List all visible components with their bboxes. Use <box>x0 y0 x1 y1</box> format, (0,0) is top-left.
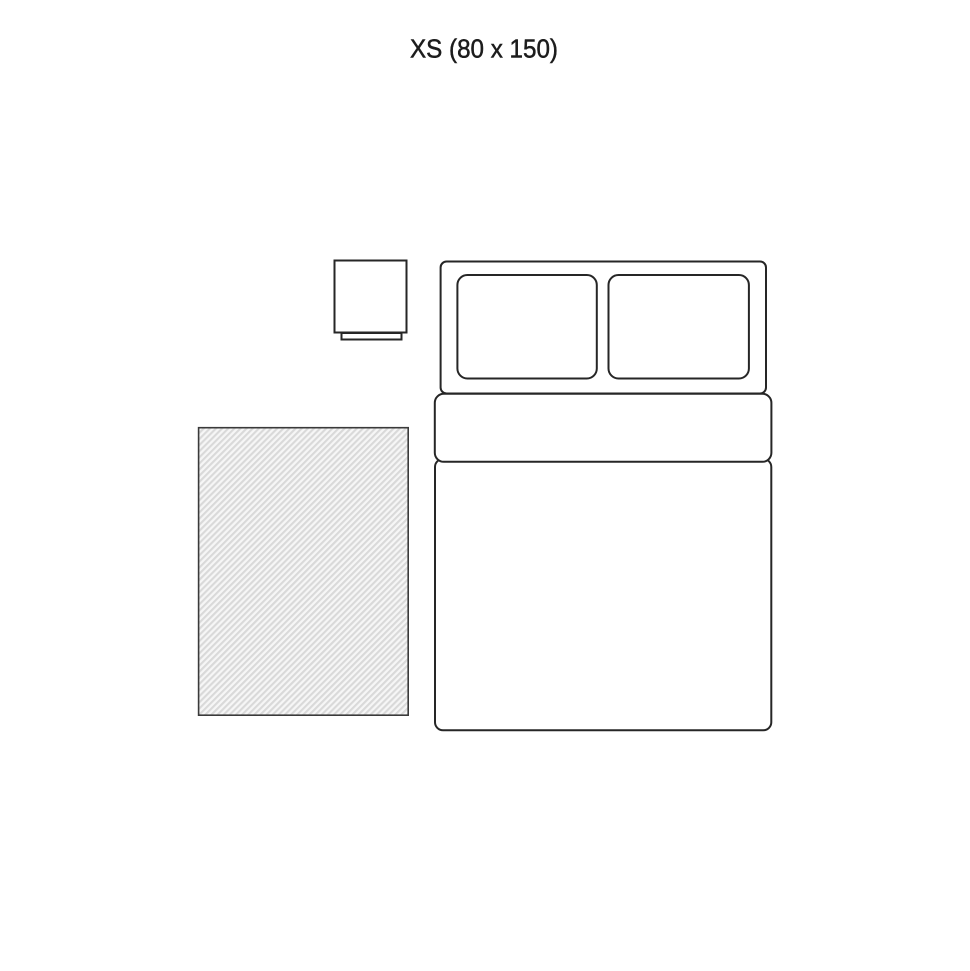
svg-text:XS (80 x 150): XS (80 x 150) <box>410 34 558 64</box>
